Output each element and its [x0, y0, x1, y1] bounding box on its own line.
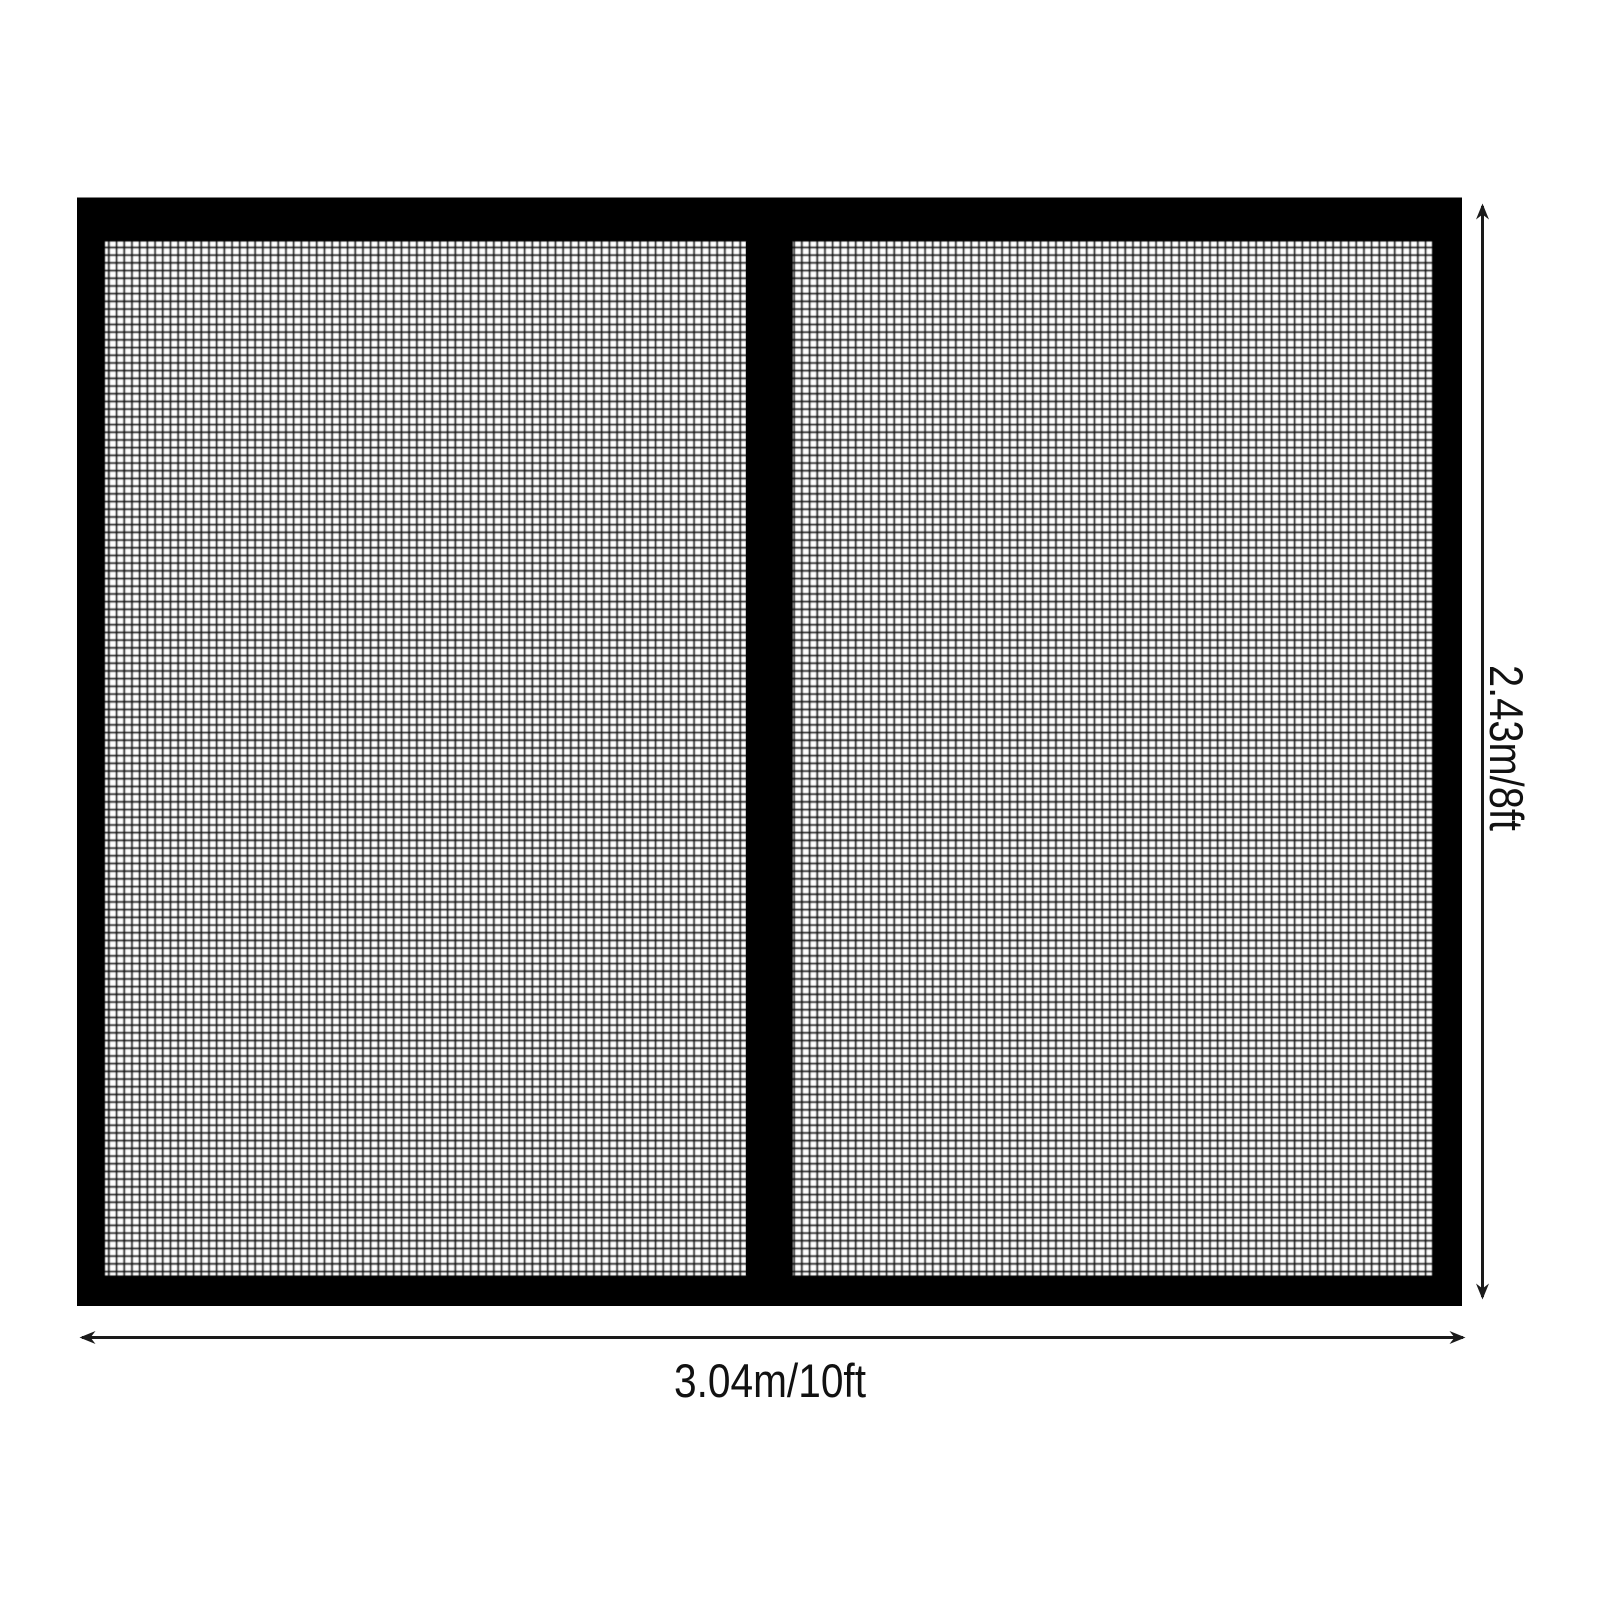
- svg-text:3.04m/10ft: 3.04m/10ft: [674, 1354, 866, 1407]
- svg-text:2.43m/8ft: 2.43m/8ft: [1480, 665, 1533, 831]
